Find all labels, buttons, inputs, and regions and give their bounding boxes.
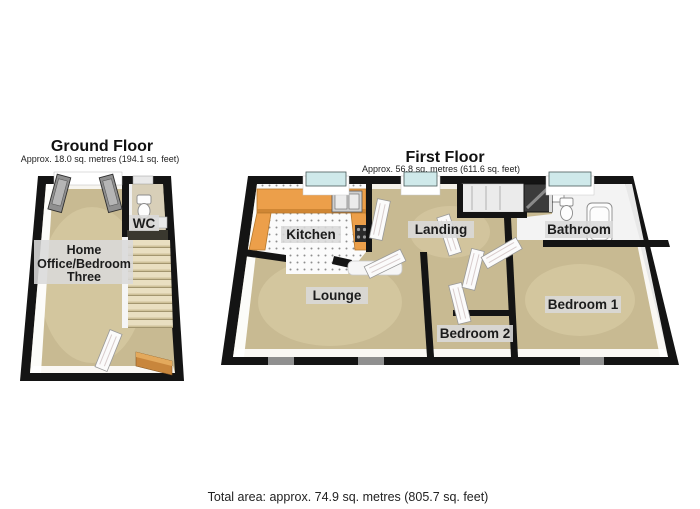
wc-window — [133, 176, 153, 184]
kitchen-label: Kitchen — [286, 227, 336, 242]
bottom-window — [268, 357, 294, 365]
landing-label: Landing — [415, 222, 468, 237]
total-area-text: Total area: approx. 74.9 sq. metres (805… — [208, 490, 489, 504]
bottom-window — [580, 357, 604, 365]
hob-ring — [363, 228, 366, 231]
bathroom-bottom-wall — [543, 240, 670, 247]
bedroom1-label: Bedroom 1 — [548, 297, 619, 312]
first-floor-plan: First Floor Approx. 56.8 sq. metres (611… — [221, 149, 679, 365]
ground-floor-title: Ground Floor — [51, 138, 153, 155]
floorplan-image: Ground Floor Approx. 18.0 sq. metres (19… — [0, 0, 700, 509]
hob-ring — [357, 235, 360, 238]
wall-face — [233, 349, 668, 357]
sink-basin — [349, 194, 359, 209]
kitchen-window — [306, 172, 346, 186]
kitchen-right-wall — [366, 184, 372, 252]
wc-left-wall — [122, 184, 129, 237]
bathroom-label: Bathroom — [547, 222, 611, 237]
staircase — [128, 240, 173, 328]
hob-ring — [363, 235, 366, 238]
ground-floor-plan: Ground Floor Approx. 18.0 sq. metres (19… — [20, 138, 184, 381]
toilet-bowl — [561, 206, 573, 221]
toilet-cistern — [560, 198, 573, 206]
home-office-label-line3: Three — [67, 270, 101, 284]
first-floor-subtitle: Approx. 56.8 sq. metres (611.6 sq. feet) — [362, 164, 520, 174]
home-office-label-line1: Home — [67, 243, 102, 257]
bedroom2-label: Bedroom 2 — [440, 326, 511, 341]
stairs-top-wall — [127, 230, 168, 240]
bathroom-window — [549, 172, 591, 186]
bottom-window — [358, 357, 384, 365]
hob-ring — [357, 228, 360, 231]
toilet-cistern — [137, 195, 151, 204]
lounge-label: Lounge — [313, 288, 362, 303]
stairwell-opening — [462, 184, 524, 212]
hall-bottom-wall — [457, 212, 527, 218]
ground-floor-subtitle: Approx. 18.0 sq. metres (194.1 sq. feet) — [21, 154, 180, 164]
wc-label: WC — [133, 216, 156, 231]
sink-basin — [335, 194, 347, 209]
home-office-label-line2: Office/Bedroom — [37, 257, 131, 271]
landing-window — [404, 172, 437, 186]
